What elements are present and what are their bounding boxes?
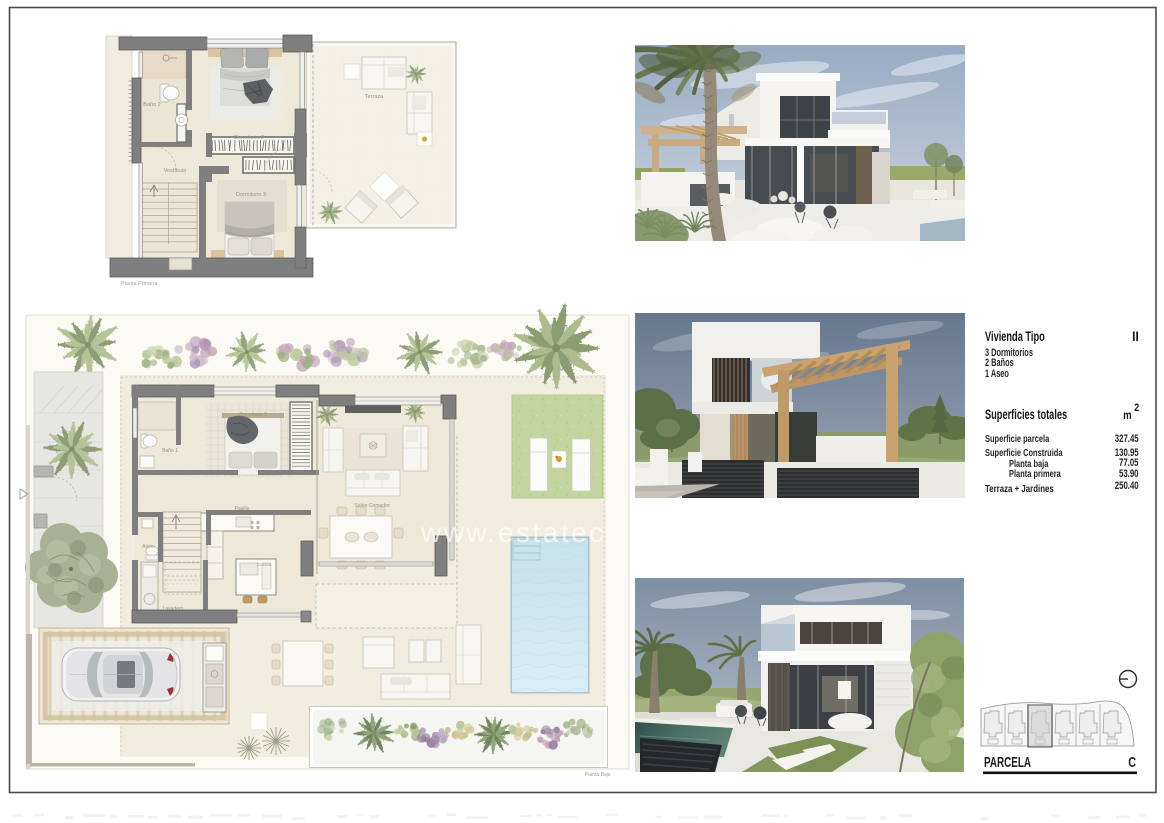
svg-text:Dormitorio 3: Dormitorio 3 xyxy=(236,192,266,198)
svg-text:Baño 1: Baño 1 xyxy=(162,448,178,454)
svg-text:Planta Primera: Planta Primera xyxy=(121,281,158,287)
svg-text:Salón-Comedor: Salón-Comedor xyxy=(354,503,389,509)
svg-text:Pasillo: Pasillo xyxy=(235,506,250,512)
svg-text:Dormitorio 1: Dormitorio 1 xyxy=(239,412,266,418)
svg-text:Terraza: Terraza xyxy=(365,94,384,100)
svg-text:Planta Baja: Planta Baja xyxy=(585,772,611,778)
svg-text:www.estatec: www.estatec xyxy=(420,517,606,548)
svg-text:Vestíbulo: Vestíbulo xyxy=(164,168,187,174)
svg-text:C: C xyxy=(1128,753,1136,770)
svg-text:Baño 2: Baño 2 xyxy=(143,102,160,108)
svg-text:Lavadero: Lavadero xyxy=(163,606,184,612)
svg-text:Aseo: Aseo xyxy=(142,544,154,550)
svg-text:Dormitorio 2: Dormitorio 2 xyxy=(234,135,264,141)
svg-text:PARCELA: PARCELA xyxy=(984,754,1031,771)
svg-text:Cocina: Cocina xyxy=(257,562,272,567)
